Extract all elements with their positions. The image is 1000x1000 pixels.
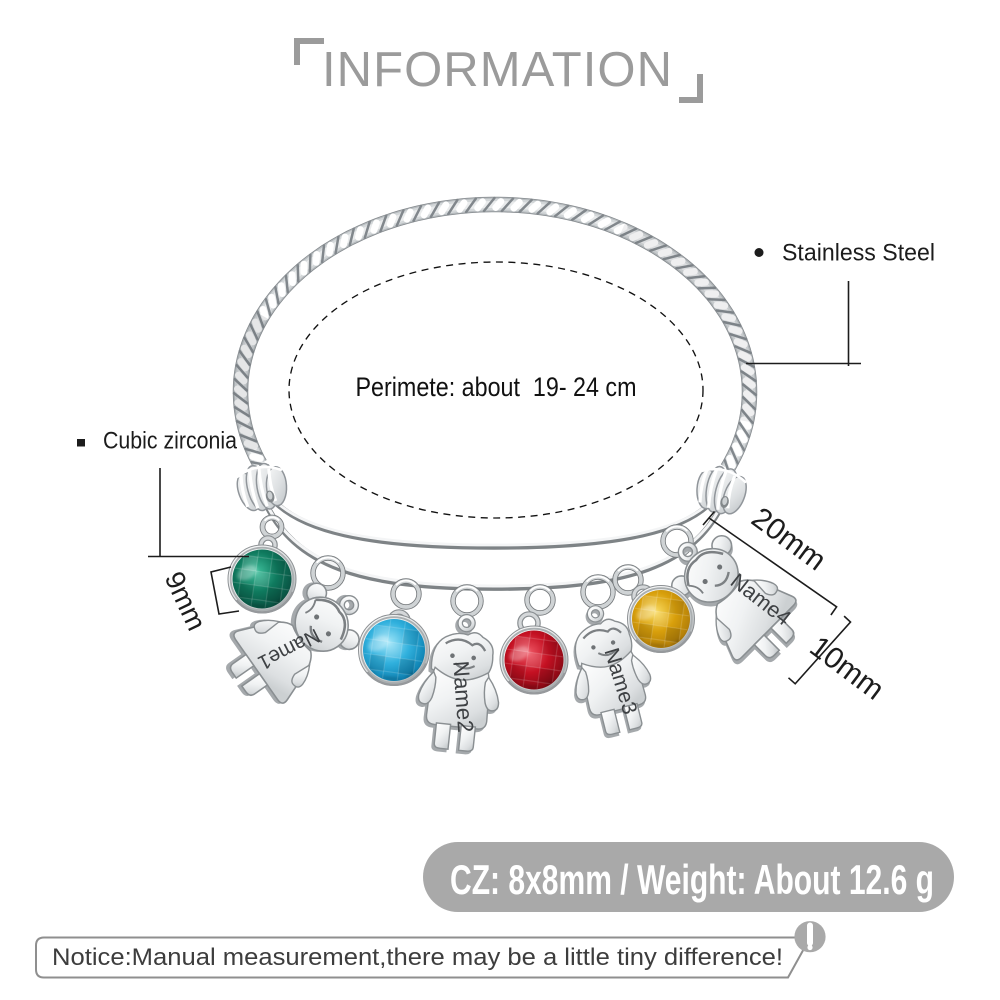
svg-text:Perimete: about 19- 24 cm: Perimete: about 19- 24 cm <box>356 372 637 402</box>
svg-text:20mm: 20mm <box>745 501 832 577</box>
svg-text:Notice:Manual measurement,ther: Notice:Manual measurement,there may be a… <box>52 944 783 971</box>
svg-text:9mm: 9mm <box>159 567 213 635</box>
svg-text:Stainless Steel: Stainless Steel <box>782 240 935 267</box>
svg-text:10mm: 10mm <box>804 630 890 707</box>
svg-text:CZ: 8x8mm / Weight: About 12.6: CZ: 8x8mm / Weight: About 12.6 g <box>450 856 934 903</box>
svg-text:INFORMATION: INFORMATION <box>322 43 672 97</box>
svg-text:Name2: Name2 <box>448 660 478 733</box>
svg-text:Cubic zirconia: Cubic zirconia <box>103 428 237 455</box>
